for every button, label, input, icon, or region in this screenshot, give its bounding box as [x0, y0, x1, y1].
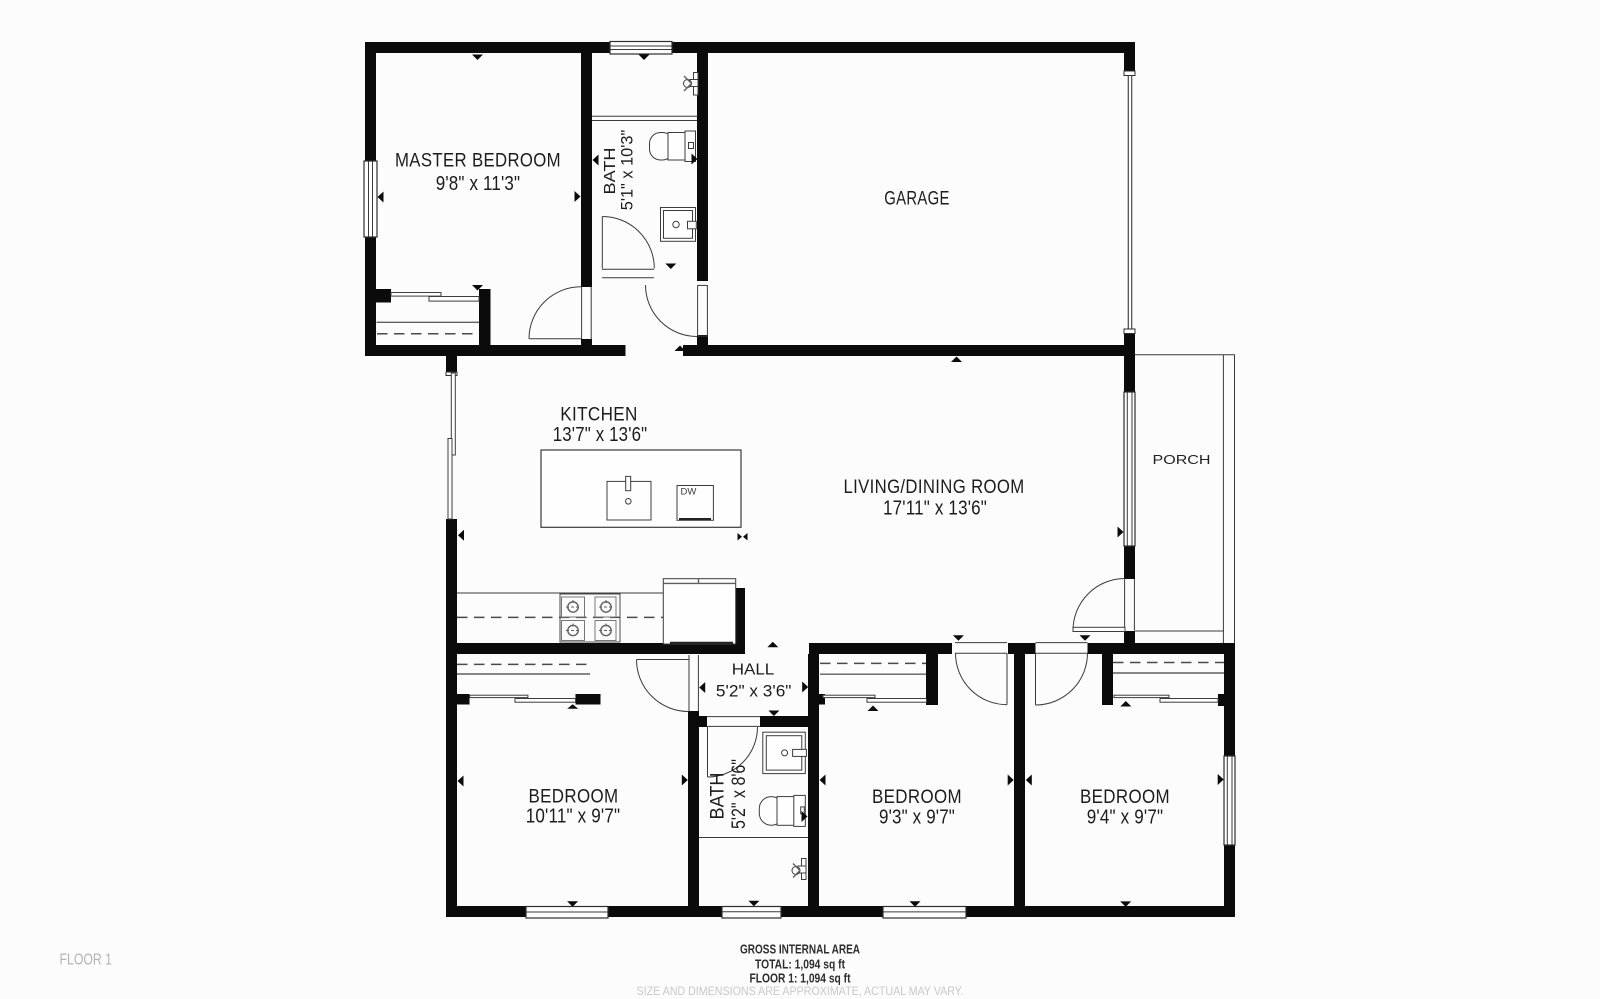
- svg-text:SIZE AND DIMENSIONS ARE APPROX: SIZE AND DIMENSIONS ARE APPROXIMATE, ACT…: [637, 986, 964, 998]
- svg-text:DW: DW: [681, 487, 697, 498]
- svg-text:17'11" x 13'6": 17'11" x 13'6": [883, 498, 987, 520]
- svg-text:5'2" x 8'6": 5'2" x 8'6": [728, 759, 750, 829]
- svg-text:5'1" x 10'3": 5'1" x 10'3": [619, 130, 637, 211]
- svg-text:TOTAL: 1,094 sq ft: TOTAL: 1,094 sq ft: [755, 958, 846, 972]
- svg-text:GARAGE: GARAGE: [884, 189, 950, 210]
- svg-text:PORCH: PORCH: [1153, 452, 1211, 467]
- svg-text:BEDROOM: BEDROOM: [529, 787, 619, 808]
- svg-text:13'7" x 13'6": 13'7" x 13'6": [553, 424, 648, 446]
- svg-text:10'11" x 9'7": 10'11" x 9'7": [526, 806, 621, 828]
- svg-text:5'2" x 3'6": 5'2" x 3'6": [716, 682, 792, 700]
- svg-text:HALL: HALL: [732, 662, 775, 679]
- svg-text:9'3" x 9'7": 9'3" x 9'7": [879, 807, 955, 829]
- svg-text:BATH: BATH: [707, 773, 729, 820]
- svg-text:BEDROOM: BEDROOM: [872, 787, 962, 808]
- svg-text:BATH: BATH: [602, 148, 619, 195]
- svg-text:9'8" x 11'3": 9'8" x 11'3": [436, 173, 521, 195]
- svg-text:FLOOR 1: 1,094 sq ft: FLOOR 1: 1,094 sq ft: [750, 972, 852, 986]
- svg-text:MASTER BEDROOM: MASTER BEDROOM: [395, 151, 561, 172]
- svg-text:9'4" x 9'7": 9'4" x 9'7": [1087, 807, 1164, 829]
- svg-text:GROSS INTERNAL AREA: GROSS INTERNAL AREA: [740, 943, 860, 957]
- svg-text:LIVING/DINING ROOM: LIVING/DINING ROOM: [844, 477, 1025, 498]
- svg-text:FLOOR 1: FLOOR 1: [60, 952, 113, 969]
- svg-text:BEDROOM: BEDROOM: [1080, 787, 1170, 808]
- svg-text:KITCHEN: KITCHEN: [560, 405, 638, 426]
